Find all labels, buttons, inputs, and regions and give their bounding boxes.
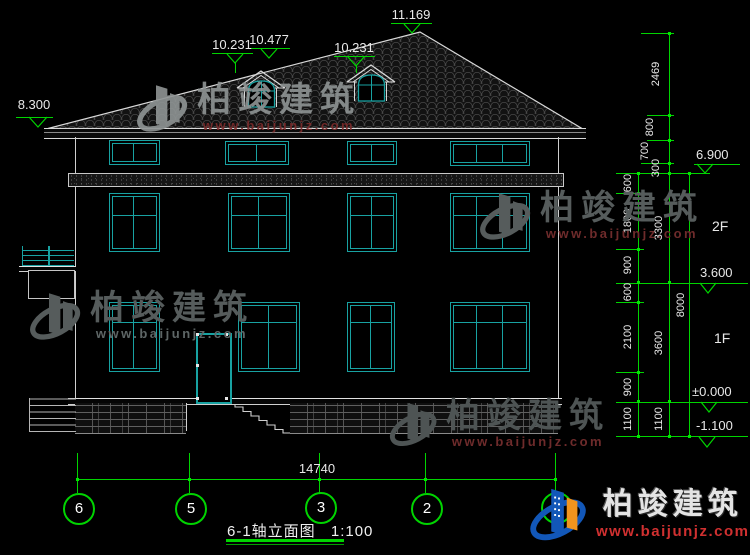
- dim-inner-1800: 1800: [622, 199, 634, 243]
- level-dormer2-eave: 10.231: [330, 41, 378, 55]
- drawing-title-scale: 1:100: [331, 523, 374, 540]
- roof: [48, 32, 582, 129]
- dim-story-1100: 1100: [653, 397, 665, 441]
- axis-bubble-2: 2: [411, 493, 443, 525]
- window-1f-2: [238, 302, 300, 372]
- stone-plinth-left: [75, 403, 186, 434]
- window-2f-1: [109, 193, 160, 252]
- level-dormer-ridge: 10.477: [245, 33, 293, 47]
- door-grips: [196, 333, 199, 336]
- attic-window-4: [450, 141, 530, 166]
- attic-window-3: [347, 141, 397, 165]
- cad-elevation-canvas: 8.300 10.231 10.477 10.231 11.169 6.900 …: [0, 0, 750, 555]
- floor-label-2f: 2F: [712, 219, 728, 233]
- dim-inner-600b: 600: [622, 270, 634, 314]
- level-6900: 6.900: [696, 148, 729, 162]
- dim-roof-2469: 2469: [650, 52, 662, 96]
- level-main-ridge: 11.169: [387, 8, 435, 22]
- level-left-eave: 8.300: [10, 98, 58, 112]
- dim-story-3600: 3600: [653, 321, 665, 365]
- dim-total-height: 8000: [675, 283, 687, 327]
- axis-bubble-6: 6: [63, 493, 95, 525]
- stone-plinth-right: [290, 403, 558, 434]
- window-1f-1: [109, 302, 160, 372]
- window-2f-2: [228, 193, 290, 252]
- drawing-title: 6-1轴立面图 1:100: [227, 520, 373, 541]
- level-minus-1100: -1.100: [696, 419, 733, 433]
- belt-course-band: [68, 173, 564, 187]
- window-1f-3: [347, 302, 395, 372]
- window-1f-4: [450, 302, 530, 372]
- drawing-title-name: 6-1轴立面图: [227, 523, 316, 540]
- dim-total-width: 14740: [287, 462, 347, 476]
- balcony-railing-post: [48, 246, 50, 266]
- side-steps-left: [29, 398, 76, 432]
- level-0000: ±0.000: [692, 385, 732, 399]
- axis-bubble-5: 5: [175, 493, 207, 525]
- floor-label-1f: 1F: [714, 331, 730, 345]
- entry-steps: [235, 403, 292, 433]
- window-2f-4: [450, 193, 530, 252]
- dim-inner-1100: 1100: [622, 397, 634, 441]
- entrance-door: [196, 333, 232, 404]
- balcony-under-box: [28, 270, 75, 299]
- axis-bubble-1: 1: [541, 492, 573, 524]
- dim-inner-2100: 2100: [622, 315, 634, 359]
- attic-window-1: [109, 140, 160, 165]
- dim-story-3300: 3300: [653, 206, 665, 250]
- dim-roof-300: 300: [650, 146, 662, 190]
- level-3600: 3.600: [700, 266, 733, 280]
- porch-platform-edge: [186, 403, 187, 431]
- attic-window-2: [225, 141, 289, 165]
- window-2f-3: [347, 193, 397, 252]
